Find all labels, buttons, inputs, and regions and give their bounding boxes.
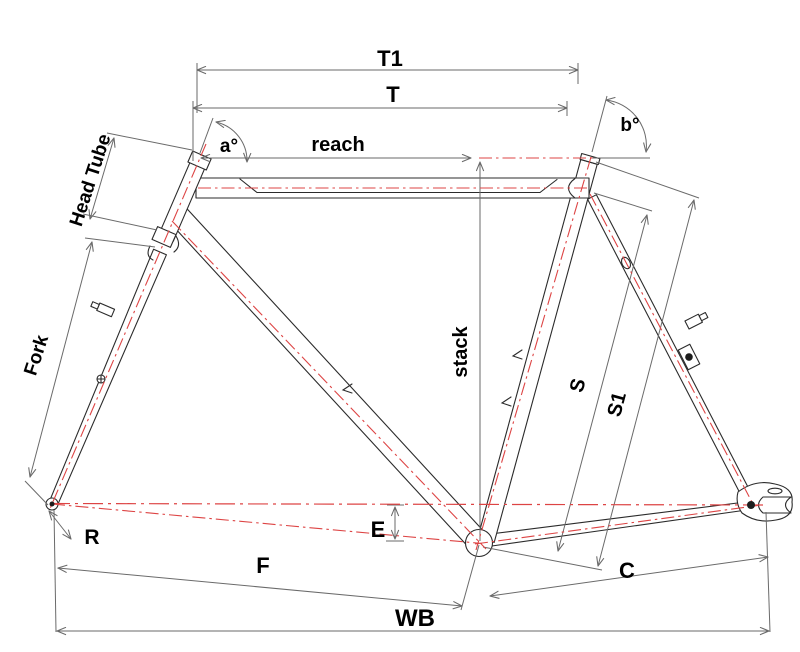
dim-label-s: S [566, 376, 591, 395]
ext-cap-s1 [596, 162, 699, 198]
bike-geometry-diagram: T1 T reach a° b° Head Tube Fork stack S … [0, 0, 800, 652]
ext-bb-s [483, 547, 602, 570]
fork-stud [90, 300, 114, 316]
rear-dropout-hole [768, 488, 782, 494]
seat-tube [478, 160, 597, 543]
dim-label-fork: Fork [20, 332, 53, 378]
centerline-chain-stay [475, 506, 758, 545]
dim-label-t1: T1 [377, 46, 403, 71]
frame-outline [46, 151, 792, 557]
dim-label-seat-angle: b° [620, 115, 639, 136]
ext-rear-axle-vertical [766, 512, 770, 632]
seat-tube-boss-1 [513, 350, 522, 359]
dim-rake [49, 511, 71, 539]
ext-headtube-top [107, 133, 192, 150]
ext-front-axle-vertical [54, 510, 56, 632]
dim-label-chainstay: C [619, 558, 635, 583]
dim-label-head-angle: a° [220, 136, 238, 157]
dim-label-t: T [386, 82, 400, 107]
down-tube [168, 206, 483, 546]
dim-label-s1: S1 [603, 390, 631, 419]
front-axle-dot [50, 502, 55, 507]
dim-label-bb-drop: E [371, 517, 386, 542]
rear-axle-dot [747, 501, 755, 509]
dim-label-head-tube: Head Tube [66, 132, 116, 230]
dim-label-wheelbase: WB [395, 605, 435, 632]
diagram-svg: T1 T reach a° b° Head Tube Fork stack S … [0, 0, 800, 652]
dim-label-stack: stack [450, 326, 472, 378]
dim-label-rake: R [84, 526, 99, 549]
fork-blade [50, 249, 166, 504]
centerline-axle [50, 504, 768, 506]
ext-seat-axis-up [592, 96, 607, 152]
dimension-lines [25, 63, 770, 632]
centerline-front-axle-bb [52, 504, 482, 544]
seat-tube-boss-2 [502, 397, 511, 406]
ext-fork-top [85, 238, 155, 247]
centerline-steering-axis [49, 144, 206, 511]
ext-seat-axis-down [461, 545, 479, 610]
ext-fork-bottom [25, 481, 48, 505]
seat-stay-stud [685, 311, 709, 329]
ext-steering-axis-up [200, 118, 213, 153]
ext-headtube-bottom [83, 214, 157, 230]
dim-label-reach: reach [311, 134, 364, 156]
centerlines [49, 144, 768, 550]
dim-label-front-center: F [256, 553, 269, 578]
